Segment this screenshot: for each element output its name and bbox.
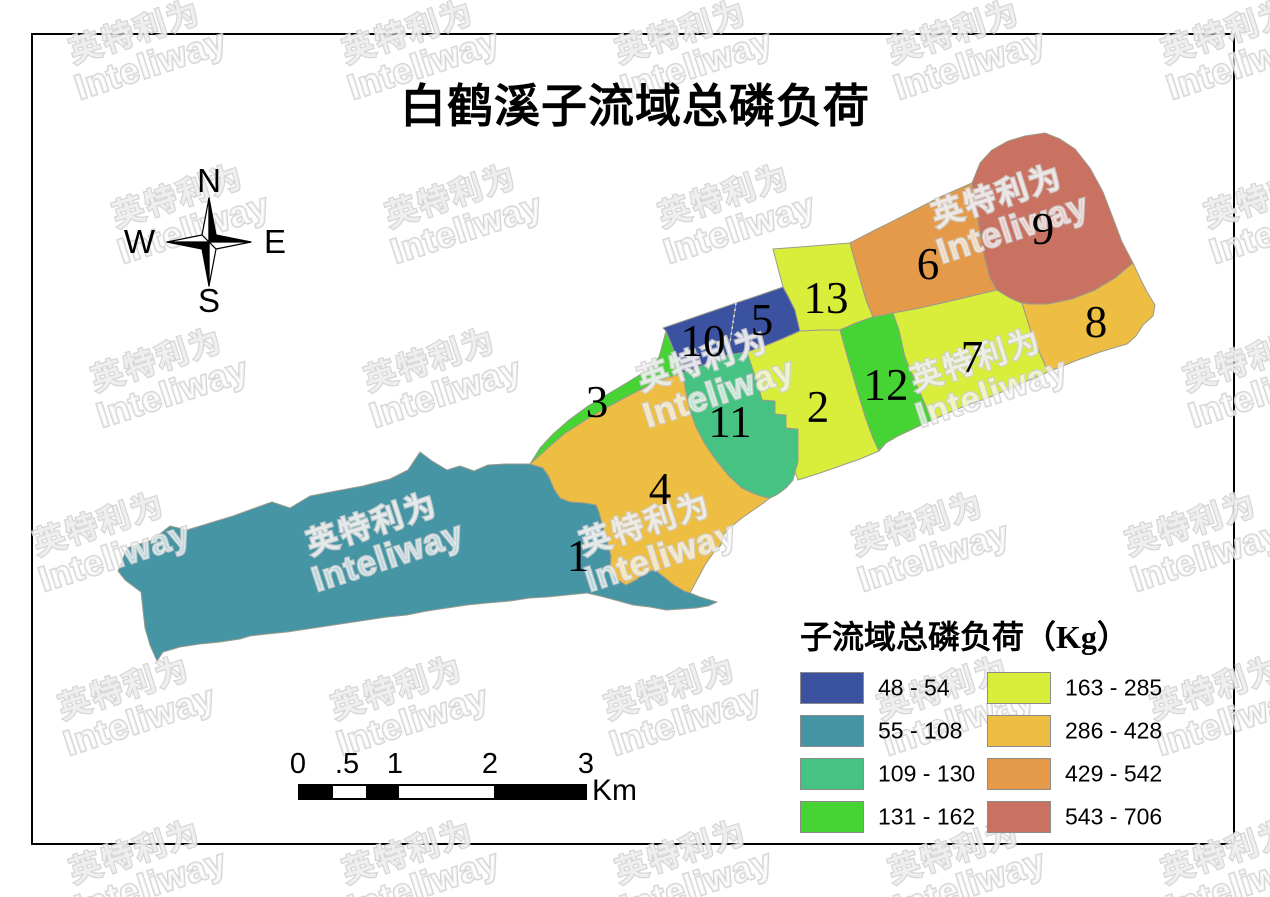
legend-swatch — [800, 801, 864, 833]
legend-range-label: 429 - 542 — [1065, 761, 1162, 788]
legend-range-label: 163 - 285 — [1065, 675, 1162, 702]
legend-range-label: 48 - 54 — [878, 675, 950, 702]
legend-swatch — [987, 715, 1051, 747]
legend: 子流域总磷负荷（Kg） 48 - 5455 - 108109 - 130131 … — [800, 612, 1200, 897]
legend-swatch — [800, 672, 864, 704]
legend-swatch — [800, 715, 864, 747]
legend-swatch — [987, 672, 1051, 704]
legend-swatch — [987, 758, 1051, 790]
legend-range-label: 543 - 706 — [1065, 804, 1162, 831]
legend-title: 子流域总磷负荷（Kg） — [800, 612, 1200, 658]
legend-range-label: 109 - 130 — [878, 761, 975, 788]
legend-swatch — [800, 758, 864, 790]
map-document-page: 英特利为Inteliway英特利为Inteliway英特利为Inteliway英… — [0, 0, 1270, 897]
page-title: 白鹤溪子流域总磷负荷 — [0, 70, 1270, 136]
legend-swatch — [987, 801, 1051, 833]
legend-items: 48 - 5455 - 108109 - 130131 - 162163 - 2… — [800, 672, 1200, 897]
subwatershed-region-9 — [972, 133, 1133, 304]
legend-range-label: 55 - 108 — [878, 718, 962, 745]
legend-range-label: 286 - 428 — [1065, 718, 1162, 745]
legend-range-label: 131 - 162 — [878, 804, 975, 831]
